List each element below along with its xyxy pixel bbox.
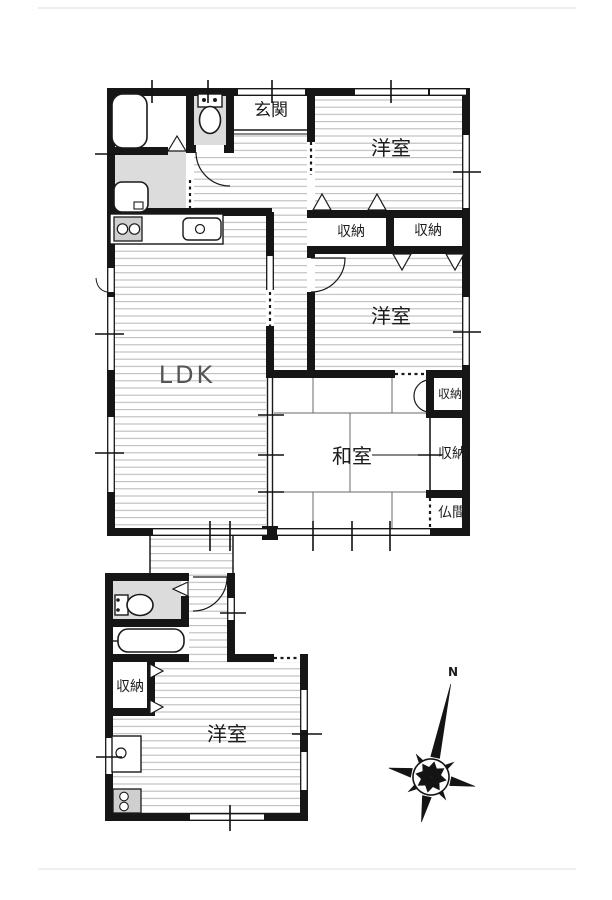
floorplan-page: 玄関 洋室 洋室 収納 収納 LDK 和室 収納 収納 仏間 収納 洋室 N [0,0,612,900]
compass-rose [379,675,494,831]
wall-annex-right [300,654,308,821]
corridor-floor [274,210,307,370]
annex-bathtub [111,629,184,652]
label-compass-north: N [448,666,458,678]
label-closet-e2: 収納 [438,447,466,461]
bathtub [112,94,147,148]
wall-annex-left [105,573,113,821]
walkway-floor [150,536,233,573]
label-closet-n1: 収納 [337,225,365,239]
label-washitsu: 和室 [332,446,372,466]
label-bedroom-ne: 洋室 [371,138,411,158]
label-genkan: 玄関 [254,103,288,120]
compass-north-needle [431,683,455,758]
kitchen-counter [110,214,223,244]
label-closet-e1: 収納 [438,388,462,400]
hall-floor [234,133,307,210]
floorplan-svg [0,0,612,900]
annex-toilet [115,595,153,616]
washbasin [114,182,148,212]
label-bedroom-e: 洋室 [371,306,411,326]
back-door-arc [96,278,107,292]
label-butsuma: 仏間 [438,506,466,520]
label-closet-annex: 収納 [116,680,144,694]
label-bedroom-annex: 洋室 [207,724,247,744]
wall-annex-top [105,573,189,581]
toilet [198,94,222,134]
label-closet-n2: 収納 [414,224,442,238]
label-ldk: LDK [159,363,216,387]
